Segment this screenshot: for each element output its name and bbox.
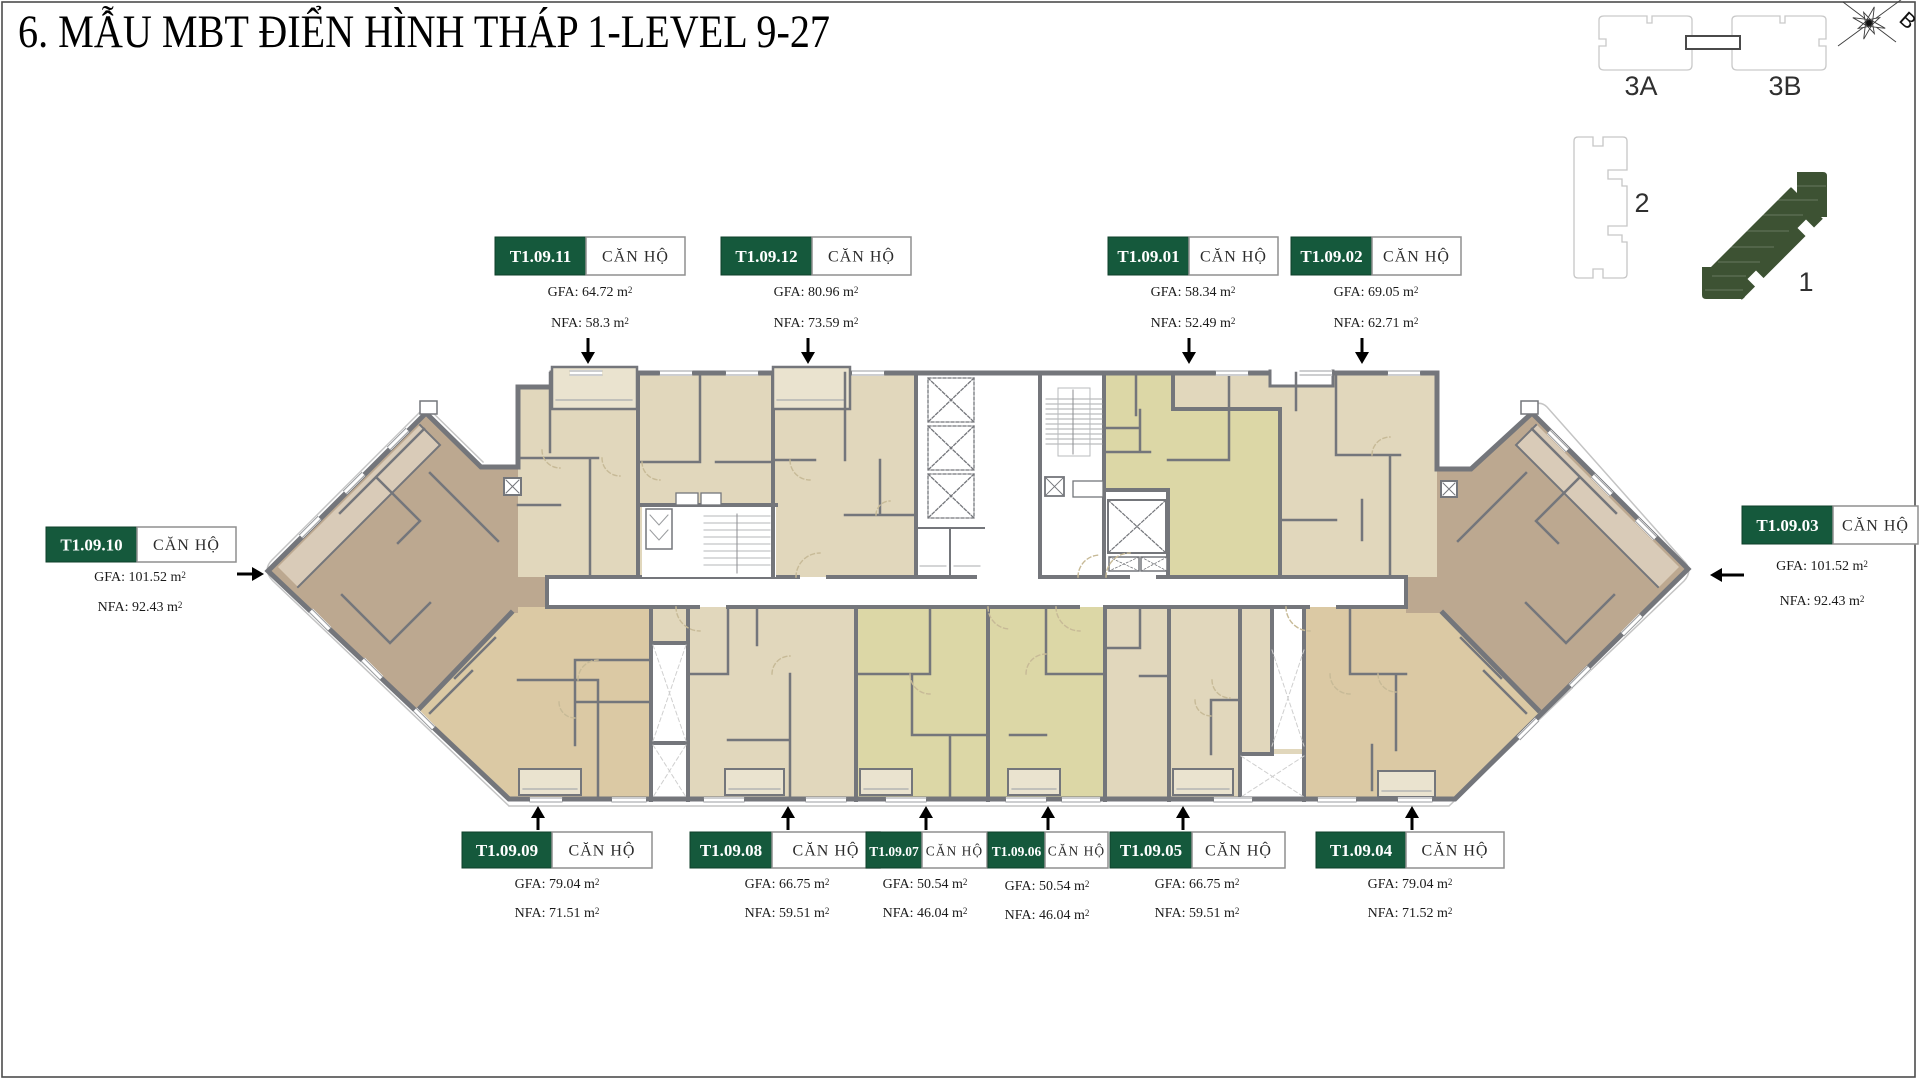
svg-text:CĂN HỘ: CĂN HỘ — [1048, 844, 1105, 859]
svg-text:NFA: 58.3 m2: NFA: 58.3 m2 — [551, 316, 629, 331]
svg-text:T1.09.06: T1.09.06 — [992, 844, 1042, 859]
svg-text:T1.09.02: T1.09.02 — [1300, 247, 1362, 266]
svg-text:NFA: 73.59 m2: NFA: 73.59 m2 — [774, 316, 859, 331]
svg-text:GFA: 69.05 m2: GFA: 69.05 m2 — [1334, 285, 1419, 300]
svg-text:T1.09.11: T1.09.11 — [510, 247, 571, 266]
svg-text:3B: 3B — [1768, 71, 1801, 101]
svg-text:1: 1 — [1798, 267, 1813, 297]
svg-text:GFA: 101.52 m2: GFA: 101.52 m2 — [94, 570, 186, 585]
svg-text:CĂN HỘ: CĂN HỘ — [926, 844, 983, 859]
svg-text:GFA: 66.75 m2: GFA: 66.75 m2 — [745, 877, 830, 892]
svg-text:GFA: 79.04 m2: GFA: 79.04 m2 — [515, 877, 600, 892]
svg-text:T1.09.07: T1.09.07 — [869, 844, 919, 859]
svg-text:GFA: 80.96 m2: GFA: 80.96 m2 — [774, 285, 859, 300]
svg-text:T1.09.01: T1.09.01 — [1117, 247, 1179, 266]
svg-text:T1.09.12: T1.09.12 — [735, 247, 797, 266]
svg-text:6. MẪU MBT ĐIỂN HÌNH THÁP 1-LE: 6. MẪU MBT ĐIỂN HÌNH THÁP 1-LEVEL 9-27 — [18, 5, 830, 58]
svg-text:CĂN HỘ: CĂN HỘ — [1422, 841, 1489, 860]
svg-text:CĂN HỘ: CĂN HỘ — [602, 247, 669, 266]
svg-text:T1.09.05: T1.09.05 — [1120, 841, 1182, 860]
svg-text:CĂN HỘ: CĂN HỘ — [793, 841, 860, 860]
svg-text:GFA: 50.54 m2: GFA: 50.54 m2 — [883, 877, 968, 892]
svg-text:GFA: 66.75 m2: GFA: 66.75 m2 — [1155, 877, 1240, 892]
svg-text:GFA: 101.52 m2: GFA: 101.52 m2 — [1776, 559, 1868, 574]
svg-text:2: 2 — [1634, 188, 1649, 218]
svg-text:CĂN HỘ: CĂN HỘ — [1842, 516, 1909, 535]
svg-text:NFA: 71.51 m2: NFA: 71.51 m2 — [515, 906, 600, 921]
svg-text:T1.09.08: T1.09.08 — [700, 841, 762, 860]
svg-text:CĂN HỘ: CĂN HỘ — [569, 841, 636, 860]
svg-text:GFA: 58.34 m2: GFA: 58.34 m2 — [1151, 285, 1236, 300]
svg-text:CĂN HỘ: CĂN HỘ — [828, 247, 895, 266]
svg-text:CĂN HỘ: CĂN HỘ — [1205, 841, 1272, 860]
svg-text:CĂN HỘ: CĂN HỘ — [153, 535, 220, 554]
svg-text:T1.09.04: T1.09.04 — [1330, 841, 1393, 860]
svg-text:T1.09.03: T1.09.03 — [1756, 516, 1818, 535]
svg-text:3A: 3A — [1624, 71, 1657, 101]
svg-text:GFA: 64.72 m2: GFA: 64.72 m2 — [548, 285, 633, 300]
svg-text:NFA: 92.43 m2: NFA: 92.43 m2 — [1780, 594, 1865, 609]
svg-text:CĂN HỘ: CĂN HỘ — [1383, 247, 1450, 266]
svg-text:T1.09.10: T1.09.10 — [60, 536, 122, 555]
svg-text:NFA: 46.04 m2: NFA: 46.04 m2 — [1005, 908, 1090, 923]
svg-text:NFA: 59.51 m2: NFA: 59.51 m2 — [1155, 906, 1240, 921]
svg-text:NFA: 71.52 m2: NFA: 71.52 m2 — [1368, 906, 1453, 921]
svg-text:GFA: 79.04 m2: GFA: 79.04 m2 — [1368, 877, 1453, 892]
svg-text:GFA: 50.54 m2: GFA: 50.54 m2 — [1005, 879, 1090, 894]
svg-text:NFA: 59.51 m2: NFA: 59.51 m2 — [745, 906, 830, 921]
svg-text:T1.09.09: T1.09.09 — [476, 841, 538, 860]
svg-text:NFA: 62.71 m2: NFA: 62.71 m2 — [1334, 316, 1419, 331]
svg-text:NFA: 46.04 m2: NFA: 46.04 m2 — [883, 906, 968, 921]
svg-text:NFA: 92.43 m2: NFA: 92.43 m2 — [98, 600, 183, 615]
svg-text:CĂN HỘ: CĂN HỘ — [1200, 247, 1267, 266]
svg-text:NFA: 52.49 m2: NFA: 52.49 m2 — [1151, 316, 1236, 331]
